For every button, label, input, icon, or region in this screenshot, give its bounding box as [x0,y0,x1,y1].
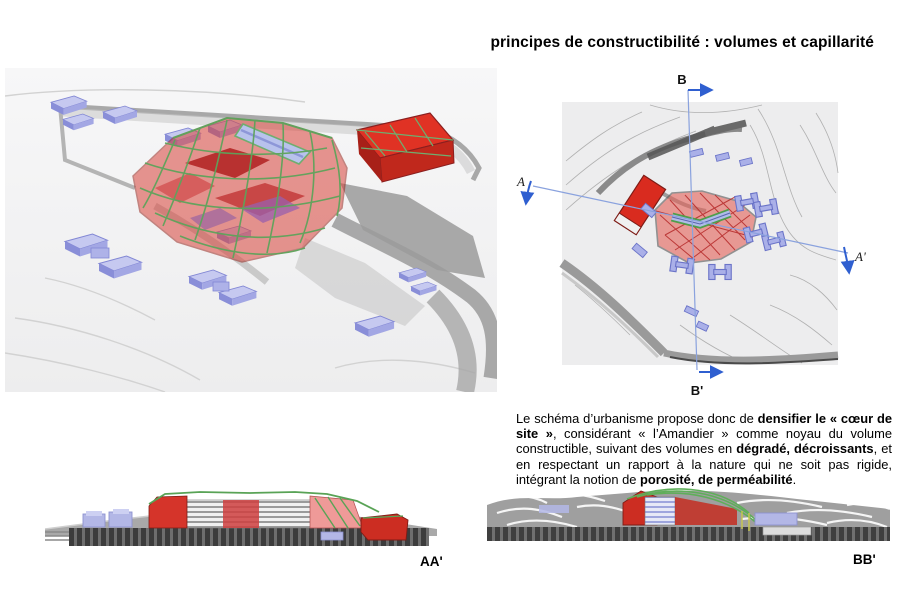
right-red-volume-section [361,514,408,540]
site-plan-svg: B B' A A' [500,65,895,400]
perspective-view-3d [5,68,497,392]
terrain-base [487,527,890,541]
section-arrow-icon [526,181,531,203]
section-label-b-prime: B' [691,383,703,398]
blue-building-section [755,513,797,525]
section-label-bb: BB' [853,552,876,567]
presentation-slide: principes de constructibilité : volumes … [0,0,900,600]
section-bb-svg [487,483,890,549]
paragraph-segment-bold: dégradé, décroissants [736,441,873,456]
section-drawing-bb [487,483,890,549]
section-label-a-prime: A' [854,249,866,264]
section-arrow-icon [844,247,849,272]
section-label-aa: AA' [420,554,443,569]
description-paragraph: Le schéma d’urbanisme propose donc de de… [516,411,892,487]
blue-building-section [539,505,569,513]
section-aa-svg [45,488,437,548]
section-label-a: A [516,174,525,189]
section-label-b: B [677,72,686,87]
page-title: principes de constructibilité : volumes … [490,34,874,52]
perspective-3d-svg [5,68,497,392]
paragraph-segment: Le schéma d’urbanisme propose donc de [516,411,758,426]
section-drawing-aa [45,488,437,548]
site-plan-view: B B' A A' [500,65,895,400]
